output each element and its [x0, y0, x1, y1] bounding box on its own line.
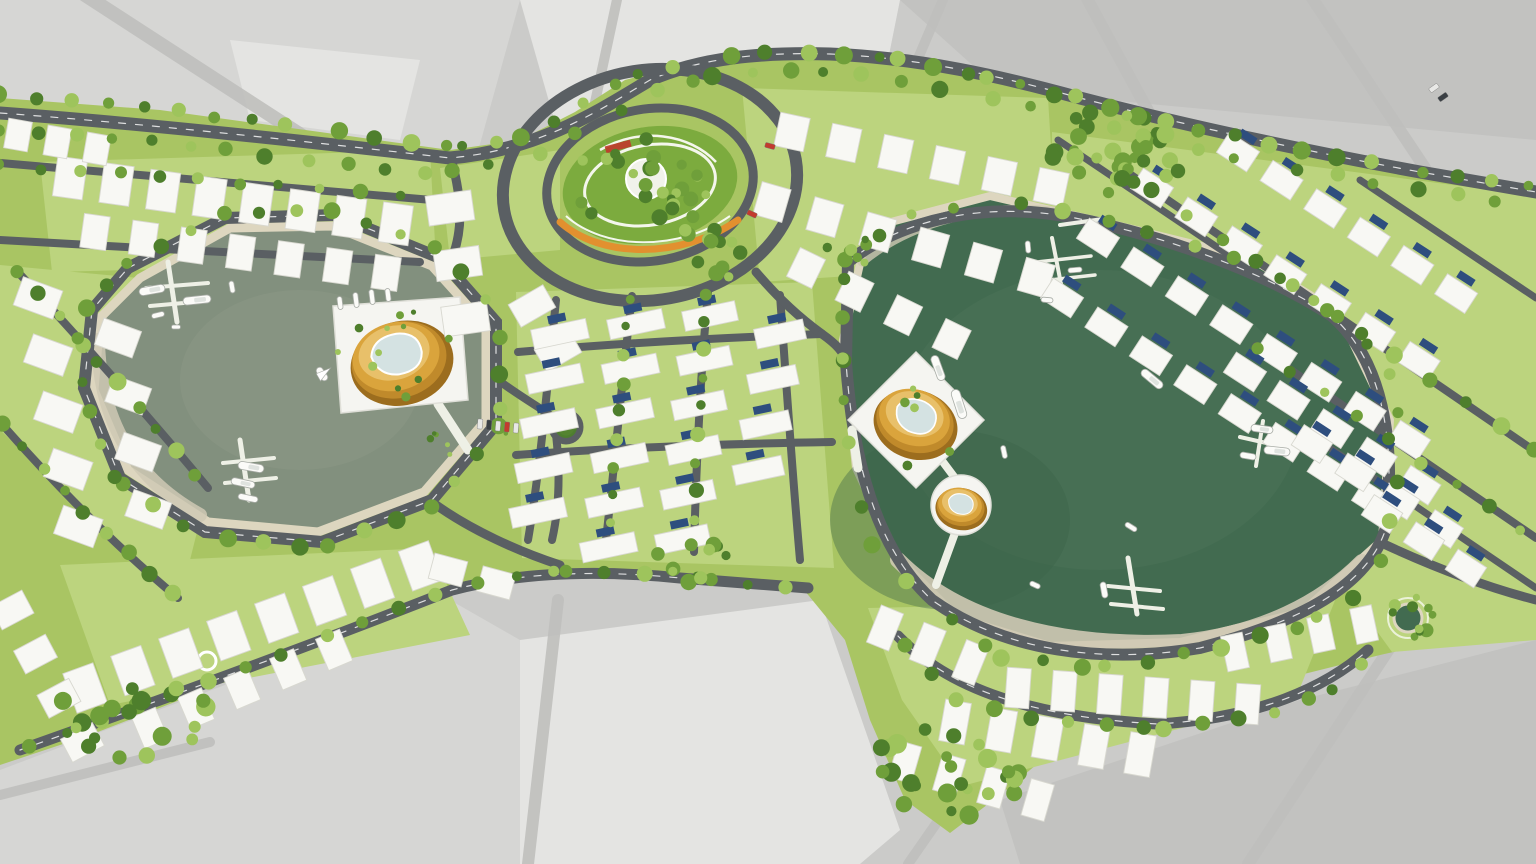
- tree: [445, 163, 460, 178]
- tree: [1382, 432, 1395, 445]
- tree: [1392, 407, 1403, 418]
- tree: [401, 392, 410, 401]
- tree: [1284, 366, 1296, 378]
- tree: [432, 431, 437, 436]
- tree: [39, 463, 50, 474]
- tree: [217, 206, 232, 221]
- tree: [445, 335, 453, 343]
- tree: [875, 52, 885, 62]
- tree: [1100, 717, 1115, 732]
- tree: [1023, 711, 1039, 727]
- tree: [168, 442, 184, 458]
- tree: [898, 638, 913, 653]
- tree: [320, 538, 335, 553]
- small-boat: [385, 288, 392, 302]
- tree: [1189, 240, 1202, 253]
- small-boat: [337, 296, 344, 310]
- tree: [860, 259, 868, 267]
- tree: [1302, 691, 1316, 705]
- tree: [691, 170, 702, 181]
- building: [1188, 680, 1215, 722]
- tree: [743, 580, 753, 590]
- tree: [568, 127, 582, 141]
- tree: [103, 700, 121, 718]
- tree: [219, 530, 237, 548]
- tree: [910, 386, 916, 392]
- tree: [1417, 167, 1428, 178]
- tree: [1252, 627, 1269, 644]
- tree: [1489, 196, 1501, 208]
- tree: [1355, 327, 1368, 340]
- tree: [1103, 215, 1116, 228]
- tree: [132, 691, 151, 710]
- tree: [1025, 101, 1036, 112]
- tree: [470, 447, 484, 461]
- tree: [898, 573, 914, 589]
- tree: [1291, 622, 1305, 636]
- tree: [1308, 295, 1319, 306]
- tree: [973, 739, 985, 751]
- tree: [247, 114, 258, 125]
- tree: [411, 310, 416, 315]
- tree: [169, 681, 185, 697]
- tree: [1414, 457, 1427, 470]
- tree: [637, 566, 653, 582]
- tree: [666, 60, 680, 74]
- building: [52, 156, 87, 200]
- tree: [1389, 608, 1397, 616]
- tree: [985, 91, 1000, 106]
- tree: [321, 629, 334, 642]
- tree: [945, 447, 954, 456]
- tree: [914, 392, 921, 399]
- building: [43, 125, 72, 159]
- car: [495, 421, 501, 431]
- tree: [1082, 105, 1098, 121]
- car: [477, 419, 483, 429]
- building: [1005, 667, 1032, 709]
- tree: [208, 112, 220, 124]
- building: [929, 145, 965, 184]
- tree: [274, 648, 287, 661]
- tree: [986, 700, 1003, 717]
- tree: [1054, 203, 1071, 220]
- tree: [1422, 373, 1437, 388]
- small-boat: [172, 325, 181, 329]
- tree: [1137, 720, 1152, 735]
- tree: [1328, 148, 1346, 166]
- tree: [1155, 721, 1172, 738]
- tree: [95, 438, 106, 449]
- tree: [559, 565, 572, 578]
- tree: [1248, 254, 1263, 269]
- tree: [855, 500, 868, 513]
- tree: [1192, 143, 1205, 156]
- tree: [621, 322, 629, 330]
- building: [1051, 670, 1078, 712]
- tree: [1015, 79, 1025, 89]
- tree: [36, 165, 47, 176]
- building: [441, 301, 491, 337]
- tree: [30, 92, 43, 105]
- tree: [17, 441, 27, 451]
- tree: [616, 105, 628, 117]
- tree: [703, 67, 721, 85]
- tree: [449, 476, 460, 487]
- tree: [186, 734, 198, 746]
- tree: [76, 505, 91, 520]
- tree: [778, 580, 792, 594]
- tree: [457, 141, 467, 151]
- building: [378, 202, 413, 246]
- tree: [890, 51, 906, 67]
- building: [826, 123, 862, 162]
- tree: [982, 787, 995, 800]
- tree: [1524, 181, 1534, 191]
- building: [322, 247, 352, 284]
- tree: [108, 470, 122, 484]
- tree: [698, 316, 709, 327]
- tree: [783, 62, 799, 78]
- tree: [704, 234, 719, 249]
- tree: [91, 356, 103, 368]
- tree: [189, 721, 201, 733]
- tree: [960, 806, 979, 825]
- tree: [1098, 660, 1111, 673]
- tree: [919, 723, 932, 736]
- tree: [838, 273, 850, 285]
- tree: [696, 341, 711, 356]
- tree: [687, 75, 700, 88]
- building: [82, 132, 111, 166]
- tree: [946, 613, 958, 625]
- tree: [1345, 590, 1361, 606]
- masterplan-aerial-rendering: [0, 0, 1536, 864]
- tree: [391, 601, 406, 616]
- tree: [483, 159, 494, 170]
- tree: [133, 401, 146, 414]
- tree: [192, 172, 204, 184]
- tree: [533, 147, 548, 162]
- tree: [835, 46, 853, 64]
- tree: [903, 461, 913, 471]
- building: [1096, 674, 1123, 716]
- tree: [139, 101, 150, 112]
- tree: [1382, 513, 1398, 529]
- tree: [835, 310, 850, 325]
- tree: [1293, 141, 1311, 159]
- tree: [978, 749, 997, 768]
- tree: [401, 324, 406, 329]
- tree: [115, 166, 127, 178]
- tree: [335, 349, 341, 355]
- building: [1142, 677, 1169, 719]
- tree: [896, 796, 912, 812]
- tree: [639, 178, 653, 192]
- tree: [60, 486, 70, 496]
- building: [4, 118, 33, 152]
- tree: [154, 239, 170, 255]
- tree: [100, 278, 114, 292]
- tree: [650, 83, 664, 97]
- tree: [610, 149, 620, 159]
- tree: [1046, 87, 1063, 104]
- tree: [278, 117, 292, 131]
- tree: [1101, 99, 1119, 117]
- tree: [1015, 197, 1029, 211]
- tree: [690, 427, 705, 442]
- tree: [471, 576, 484, 589]
- tree: [100, 527, 113, 540]
- tree: [74, 165, 86, 177]
- tree: [291, 538, 308, 555]
- tree: [480, 294, 490, 304]
- tree: [1331, 167, 1346, 182]
- tree: [78, 377, 88, 387]
- small-boat: [1068, 267, 1082, 273]
- tree: [427, 435, 434, 442]
- tree: [949, 692, 964, 707]
- building: [225, 234, 255, 271]
- tree: [578, 98, 589, 109]
- tree: [1178, 647, 1190, 659]
- tree: [837, 352, 849, 364]
- tree: [1229, 153, 1239, 163]
- tree: [895, 75, 908, 88]
- tree: [1143, 182, 1159, 198]
- tree: [55, 311, 65, 321]
- tree: [946, 806, 956, 816]
- building: [877, 134, 913, 173]
- tree: [686, 210, 699, 223]
- tree: [924, 58, 942, 76]
- tree: [1072, 166, 1086, 180]
- tree: [375, 349, 382, 356]
- tree: [62, 728, 72, 738]
- tree: [1311, 611, 1323, 623]
- tree: [685, 538, 698, 551]
- tree: [22, 739, 37, 754]
- tree: [1515, 525, 1525, 535]
- tree: [1485, 174, 1498, 187]
- tree: [1062, 716, 1074, 728]
- tree: [1415, 625, 1424, 634]
- tree: [65, 93, 79, 107]
- tree: [1067, 148, 1084, 165]
- tree: [1424, 604, 1433, 613]
- tree: [1181, 209, 1193, 221]
- tree: [1091, 153, 1102, 164]
- tree: [315, 184, 325, 194]
- tree: [938, 784, 957, 803]
- tree: [1122, 110, 1133, 121]
- tree: [139, 747, 155, 763]
- tree: [699, 374, 708, 383]
- tree: [493, 402, 507, 416]
- tree: [356, 522, 372, 538]
- tree: [1320, 303, 1334, 317]
- tree: [1103, 187, 1114, 198]
- tree: [361, 218, 372, 229]
- tree: [1413, 594, 1420, 601]
- tree: [71, 722, 82, 733]
- car: [504, 422, 510, 432]
- tree: [1139, 140, 1153, 154]
- tree: [1327, 684, 1338, 695]
- tree: [853, 66, 869, 82]
- tree: [724, 272, 733, 281]
- tree: [1364, 154, 1379, 169]
- tree: [186, 225, 197, 236]
- car: [486, 420, 492, 430]
- tree: [396, 229, 406, 239]
- tree: [54, 692, 72, 710]
- tree: [1390, 475, 1405, 490]
- tree: [701, 190, 710, 199]
- small-boat: [1025, 241, 1031, 253]
- tree: [692, 256, 705, 269]
- tree: [141, 566, 157, 582]
- tree: [946, 728, 961, 743]
- tree: [109, 373, 127, 391]
- pier: [852, 430, 858, 468]
- building: [371, 254, 401, 291]
- tree: [617, 349, 629, 361]
- tree: [733, 245, 747, 259]
- small-boat: [1041, 297, 1053, 303]
- tree: [103, 98, 114, 109]
- tree: [1493, 417, 1511, 435]
- tree: [1227, 251, 1241, 265]
- tree: [873, 229, 887, 243]
- tree: [121, 545, 137, 561]
- tree: [418, 166, 432, 180]
- tree: [876, 765, 890, 779]
- tree: [801, 45, 818, 62]
- tree: [441, 140, 452, 151]
- tree: [366, 130, 382, 146]
- tree: [608, 490, 617, 499]
- building: [425, 190, 475, 226]
- tree: [1374, 554, 1388, 568]
- tree: [256, 534, 272, 550]
- masterplan-stage: [0, 0, 1536, 864]
- tree: [610, 79, 621, 90]
- tree: [1074, 659, 1091, 676]
- tree: [384, 326, 390, 332]
- tree: [689, 515, 699, 525]
- tree: [196, 694, 210, 708]
- tree: [1407, 601, 1418, 612]
- tree: [1229, 128, 1242, 141]
- tree: [962, 67, 975, 80]
- tree: [863, 536, 880, 553]
- tree: [700, 289, 712, 301]
- tree: [512, 571, 522, 581]
- tree: [931, 81, 948, 98]
- tree: [1002, 765, 1015, 778]
- tree: [218, 142, 232, 156]
- tree: [1252, 342, 1264, 354]
- tree: [910, 780, 921, 791]
- tree: [428, 588, 442, 602]
- tree: [342, 157, 356, 171]
- tree: [842, 436, 856, 450]
- tree: [512, 128, 530, 146]
- tree: [1355, 658, 1368, 671]
- tree: [353, 184, 368, 199]
- building: [774, 112, 810, 151]
- tree: [696, 400, 706, 410]
- tree: [253, 207, 265, 219]
- tree: [403, 134, 421, 152]
- tree: [10, 265, 23, 278]
- tree: [428, 240, 442, 254]
- tree: [415, 376, 422, 383]
- tree: [290, 204, 303, 217]
- tree: [83, 404, 98, 419]
- tree: [548, 116, 561, 129]
- tree: [639, 132, 653, 146]
- tree: [1291, 164, 1303, 176]
- tree: [72, 332, 84, 344]
- tree: [910, 403, 919, 412]
- tree: [1217, 234, 1229, 246]
- tree: [165, 585, 182, 602]
- tree: [239, 661, 251, 673]
- tree: [146, 135, 157, 146]
- tree: [153, 727, 172, 746]
- tree: [234, 179, 246, 191]
- tree: [694, 571, 707, 584]
- tree: [1351, 410, 1363, 422]
- tree: [453, 263, 470, 280]
- tree: [954, 777, 968, 791]
- tree: [1107, 120, 1121, 134]
- tree: [1451, 187, 1465, 201]
- tree: [1286, 278, 1300, 292]
- tree: [668, 567, 677, 576]
- tree: [839, 395, 849, 405]
- tree: [256, 148, 272, 164]
- tree: [188, 469, 201, 482]
- building: [274, 241, 304, 278]
- tree: [1114, 170, 1131, 187]
- tree: [1191, 124, 1205, 138]
- tree: [578, 155, 588, 165]
- tree: [757, 45, 772, 60]
- tree: [200, 673, 217, 690]
- tree: [610, 433, 623, 446]
- tree: [1269, 707, 1280, 718]
- tree: [703, 544, 715, 556]
- tree: [1212, 639, 1230, 657]
- tree: [1140, 225, 1154, 239]
- tree: [324, 202, 341, 219]
- tree: [396, 311, 404, 319]
- tree: [186, 141, 197, 152]
- building: [1033, 167, 1069, 206]
- tree: [1361, 339, 1372, 350]
- tree: [690, 458, 700, 468]
- tree: [121, 258, 132, 269]
- tree: [723, 47, 741, 65]
- tree: [368, 362, 377, 371]
- tree: [177, 520, 190, 533]
- tree: [379, 163, 392, 176]
- tree: [626, 295, 635, 304]
- tree: [1368, 178, 1379, 189]
